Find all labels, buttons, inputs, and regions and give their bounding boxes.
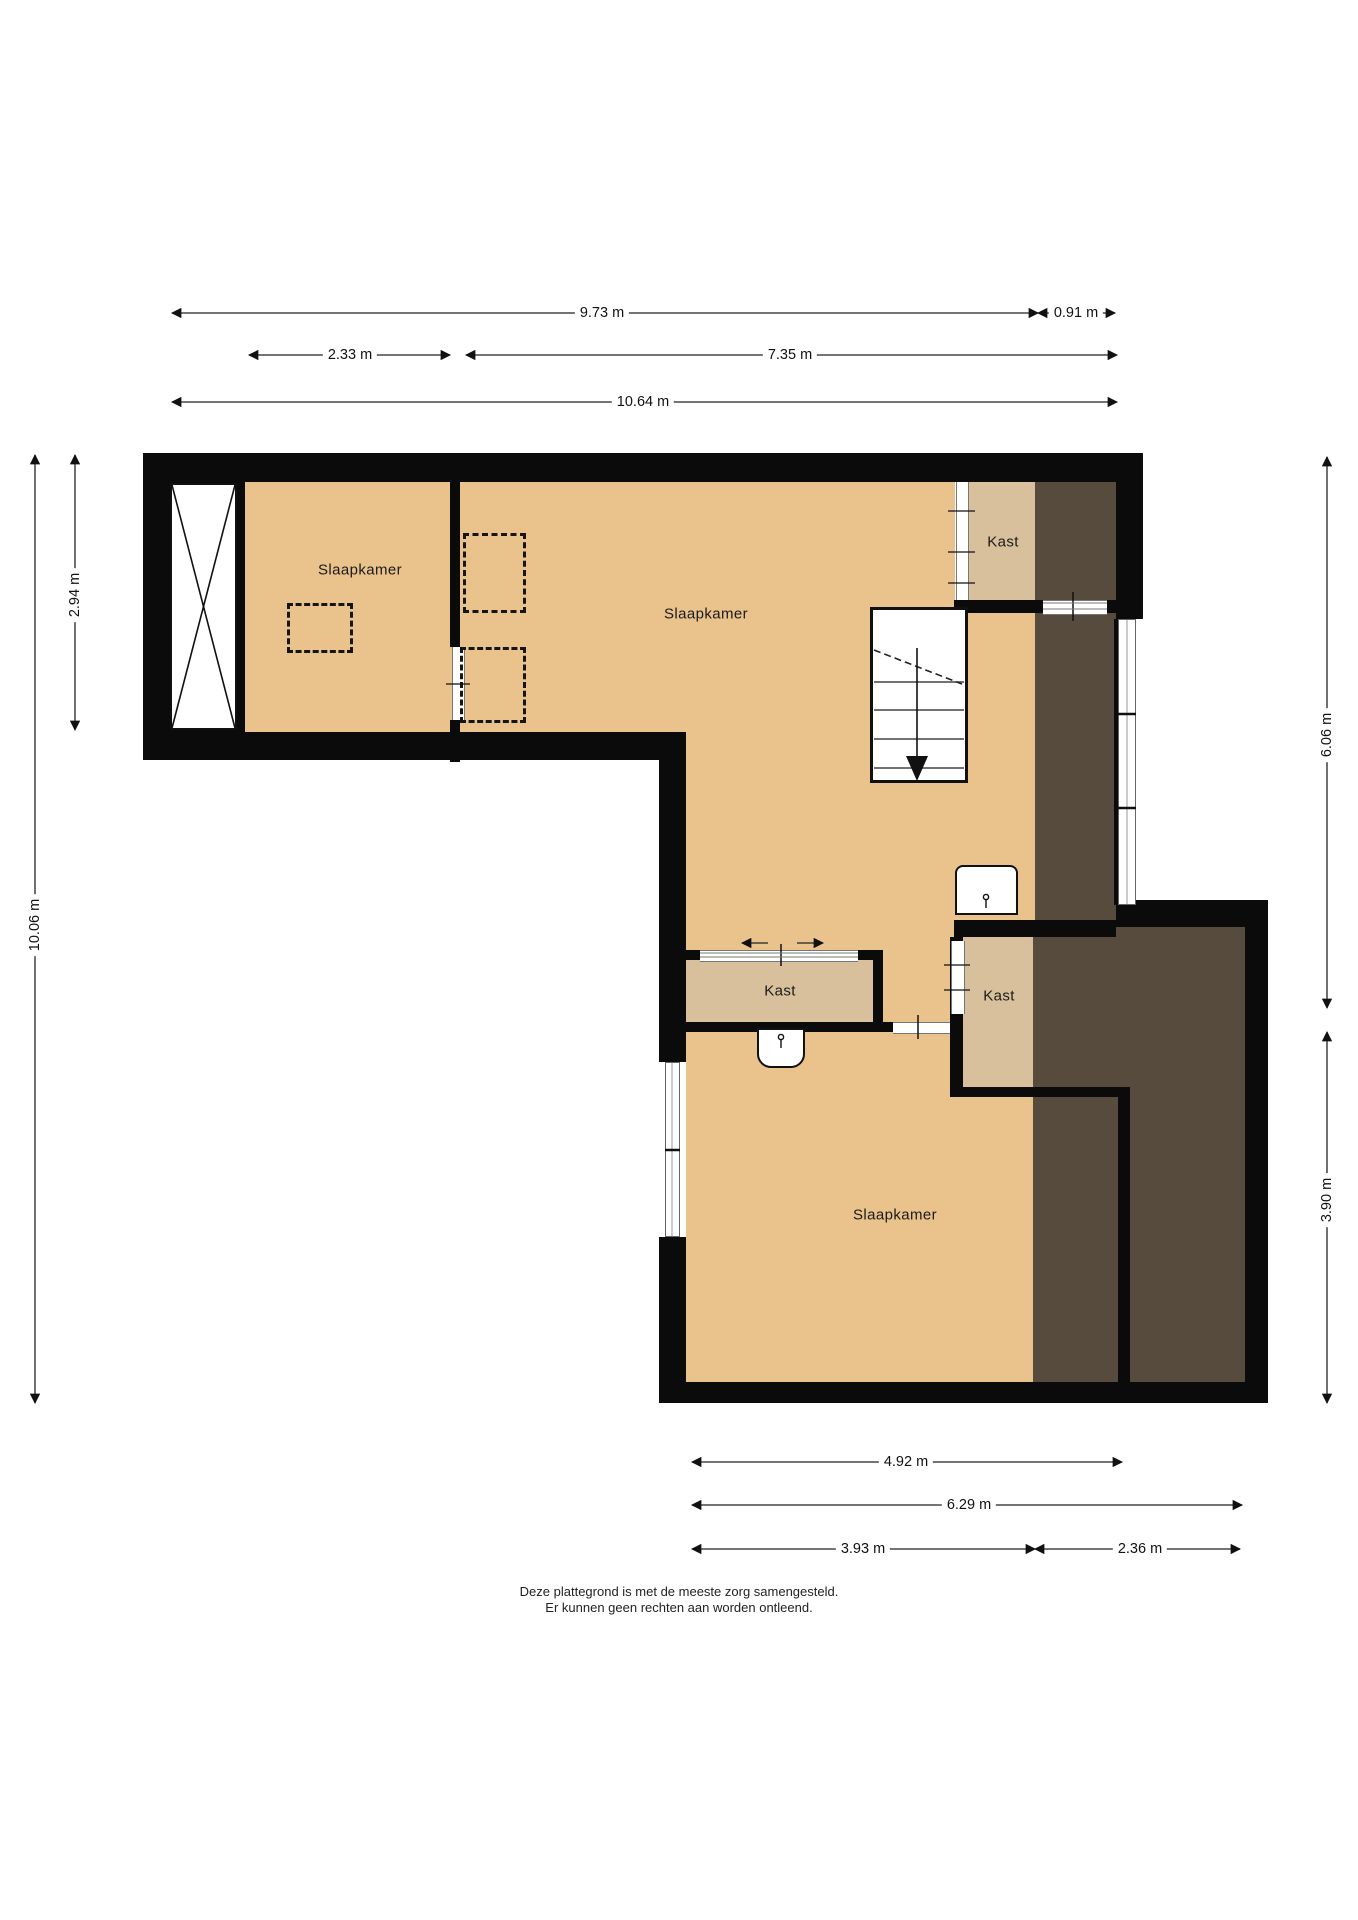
wall-kast2-right [873, 950, 883, 1032]
fixture-boiler [955, 865, 1018, 915]
dim-label-bottom-4-92: 4.92 m [879, 1454, 933, 1470]
door-sliding-kast-1 [1043, 600, 1107, 615]
floorplan-canvas: Slaapkamer Slaapkamer Slaapkamer Kast Ka… [0, 0, 1358, 1920]
dim-label-right-6-06: 6.06 m [1319, 708, 1335, 762]
door-kast-1 [956, 482, 969, 600]
dim-label-bottom-2-36: 2.36 m [1113, 1541, 1167, 1557]
wall-kast2-top-stub-left [686, 950, 700, 960]
disclaimer-line-1: Deze plattegrond is met de meeste zorg s… [520, 1584, 839, 1600]
room-label-slaapkamer-3: Slaapkamer [853, 1207, 937, 1224]
wall-bottom [659, 1382, 1268, 1403]
room-label-kast-1: Kast [987, 534, 1019, 551]
wall-kast3-bottom [950, 1087, 1130, 1097]
room-label-slaapkamer-1: Slaapkamer [318, 562, 402, 579]
room-label-kast-2: Kast [764, 983, 796, 1000]
dim-label-bottom-6-29: 6.29 m [942, 1497, 996, 1513]
door-slaapkamer-3 [893, 1022, 950, 1034]
staircase [870, 607, 968, 783]
wall-top [143, 453, 1143, 482]
dashed-roof-window-1 [287, 603, 353, 653]
dim-label-top-9-73: 9.73 m [575, 305, 629, 321]
wall-left-section-bottom [143, 732, 686, 760]
void-shaft [170, 483, 237, 730]
disclaimer-line-2: Er kunnen geen rechten aan worden ontlee… [520, 1600, 839, 1616]
dim-label-top-0-91: 0.91 m [1049, 305, 1103, 321]
dashed-roof-window-2 [463, 533, 526, 613]
low-ceiling-area-lower [1033, 927, 1245, 1382]
fixture-toilet [757, 1028, 805, 1068]
dashed-roof-window-3 [460, 647, 526, 723]
room-label-slaapkamer-2: Slaapkamer [664, 606, 748, 623]
dim-label-bottom-3-93: 3.93 m [836, 1541, 890, 1557]
wall-right-upper [1116, 453, 1143, 619]
wall-room-divider-lower [450, 720, 460, 762]
room-label-kast-3: Kast [983, 988, 1015, 1005]
dim-label-top-7-35: 7.35 m [763, 347, 817, 363]
wall-attic-divider [1118, 1097, 1130, 1382]
low-ceiling-area-upper [1035, 482, 1116, 920]
door-kast-3 [951, 941, 965, 1014]
disclaimer: Deze plattegrond is met de meeste zorg s… [520, 1584, 839, 1616]
dim-label-right-3-90: 3.90 m [1319, 1173, 1335, 1227]
floor-kast-3 [963, 937, 1033, 1087]
door-sliding-kast-2 [700, 950, 858, 962]
dim-label-left-2-94: 2.94 m [67, 568, 83, 622]
window-left [665, 1062, 680, 1237]
wall-step [1116, 900, 1268, 927]
dim-label-top-10-64: 10.64 m [612, 394, 674, 410]
dim-label-left-10-06: 10.06 m [27, 894, 43, 956]
wall-room-divider-upper [450, 482, 460, 647]
wall-middle-bottom [954, 920, 1116, 937]
window-right [1118, 619, 1136, 905]
dim-label-top-2-33: 2.33 m [323, 347, 377, 363]
wall-right-lower [1245, 900, 1268, 1403]
